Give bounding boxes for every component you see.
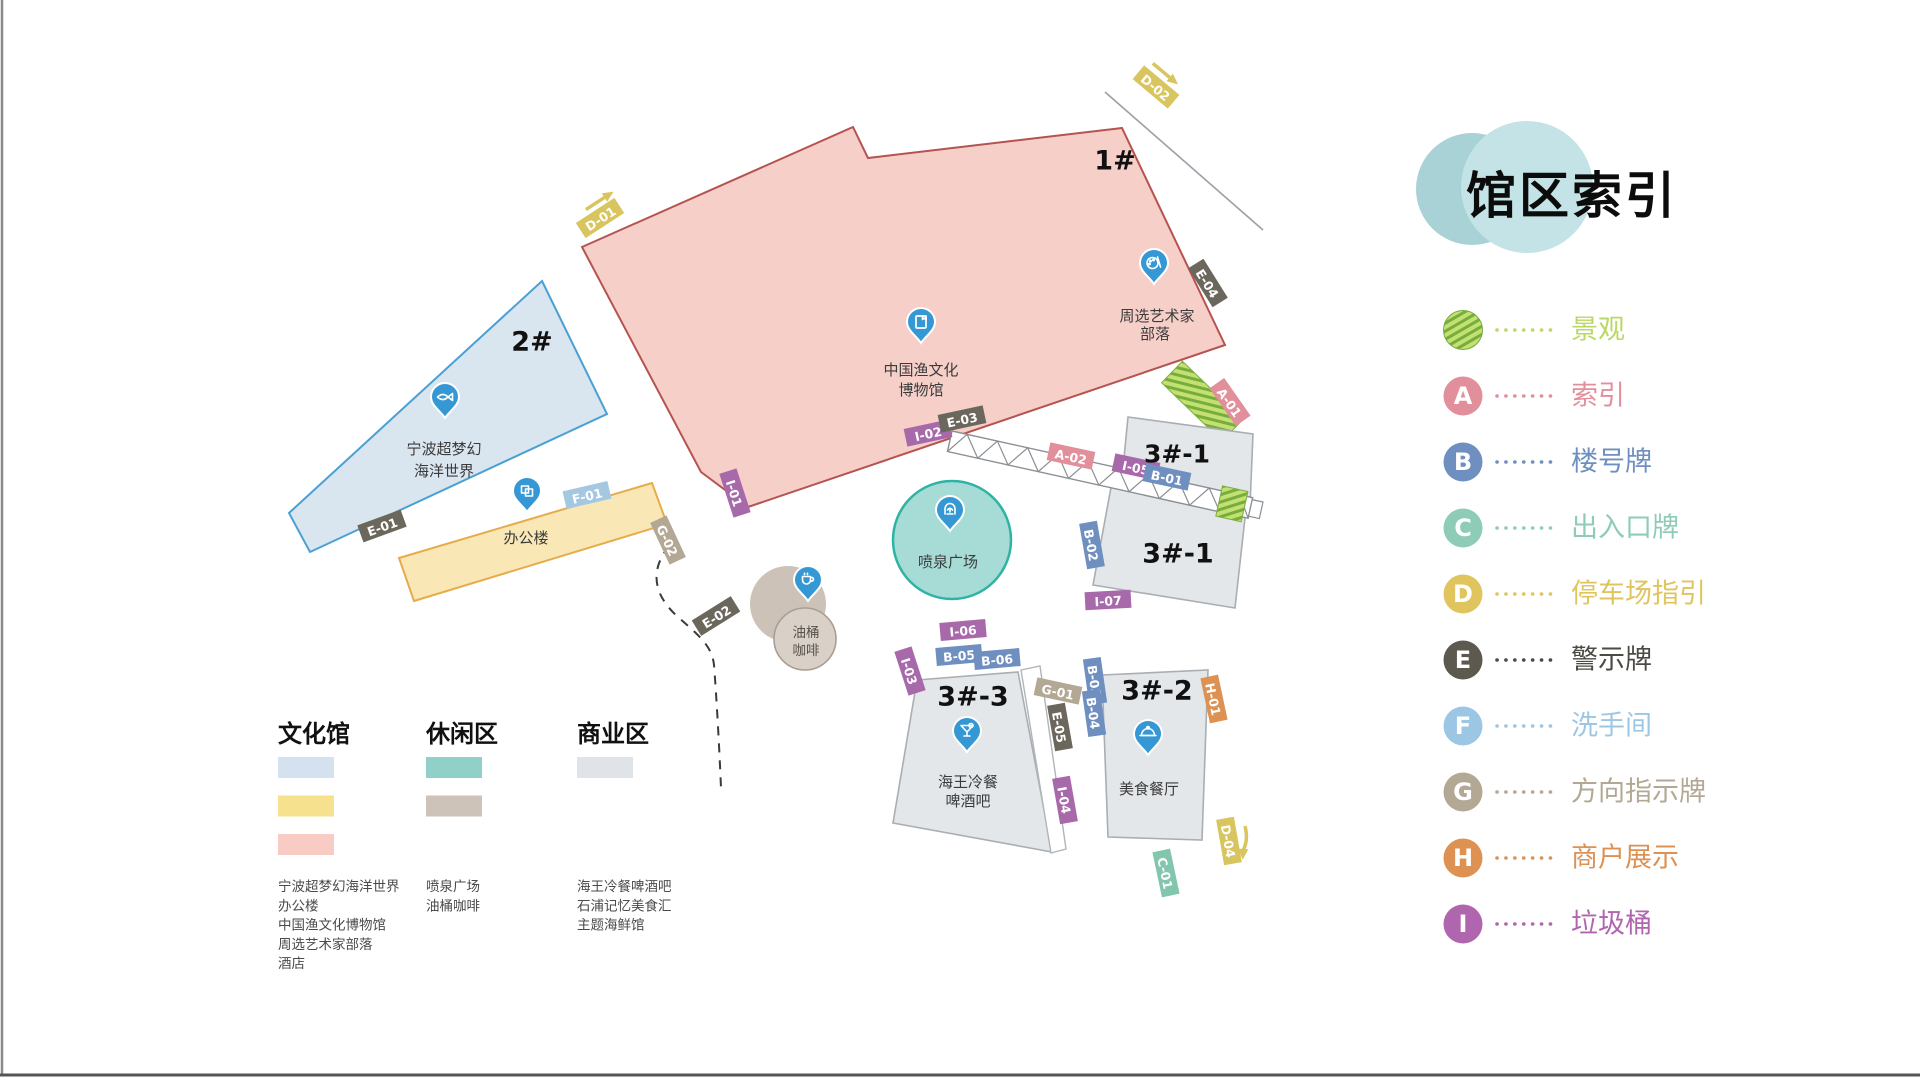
label-building-1: 1# <box>1094 146 1135 177</box>
ocean-label-line1: 宁波超梦幻 <box>406 440 481 458</box>
svg-text:酒店: 酒店 <box>278 956 305 972</box>
svg-text:景观: 景观 <box>1571 315 1625 346</box>
coffee-label-line2: 咖啡 <box>793 643 820 659</box>
svg-text:垃圾桶: 垃圾桶 <box>1571 909 1652 940</box>
label-building-3-1-lower: 3#-1 <box>1142 539 1213 570</box>
museum-label-line1: 中国渔文化 <box>883 361 958 379</box>
label-building-2: 2# <box>511 327 552 358</box>
bar-label-line2: 啤酒吧 <box>945 792 990 810</box>
svg-text:B: B <box>1454 448 1472 476</box>
svg-text:H: H <box>1453 844 1473 872</box>
svg-text:I: I <box>1459 910 1468 938</box>
svg-text:D: D <box>1453 580 1473 608</box>
svg-text:索引: 索引 <box>1571 381 1625 412</box>
label-building-3-1-upper: 3#-1 <box>1144 440 1210 469</box>
svg-text:宁波超梦幻海洋世界: 宁波超梦幻海洋世界 <box>278 878 400 895</box>
svg-text:I-07: I-07 <box>1094 593 1122 609</box>
svg-text:文化馆: 文化馆 <box>278 720 350 748</box>
svg-text:中国渔文化博物馆: 中国渔文化博物馆 <box>278 917 386 934</box>
museum-label-line2: 博物馆 <box>898 381 943 399</box>
svg-text:商户展示: 商户展示 <box>1571 843 1679 874</box>
svg-text:停车场指引: 停车场指引 <box>1571 579 1706 610</box>
svg-text:海王冷餐啤酒吧: 海王冷餐啤酒吧 <box>577 879 672 895</box>
coffee-label-line1: 油桶 <box>793 625 820 641</box>
svg-text:喷泉广场: 喷泉广场 <box>426 878 480 895</box>
restaurant-label: 美食餐厅 <box>1119 780 1179 798</box>
map-tag-I-07: I-07 <box>1085 590 1132 610</box>
svg-text:C: C <box>1454 514 1472 542</box>
label-building-3-3: 3#-3 <box>937 682 1008 713</box>
svg-text:油桶咖啡: 油桶咖啡 <box>426 898 480 914</box>
page-title: 馆区索引 <box>1466 167 1678 225</box>
svg-text:洗手间: 洗手间 <box>1571 711 1652 742</box>
svg-text:出入口牌: 出入口牌 <box>1571 513 1679 544</box>
bar-label-line1: 海王冷餐 <box>938 773 998 791</box>
svg-text:F: F <box>1455 712 1471 740</box>
artist-label-line1: 周选艺术家 <box>1119 307 1194 325</box>
ocean-label-line2: 海洋世界 <box>414 462 474 480</box>
svg-text:B-06: B-06 <box>980 651 1014 669</box>
svg-text:办公楼: 办公楼 <box>278 898 319 914</box>
svg-text:方向指示牌: 方向指示牌 <box>1571 777 1706 808</box>
venue-map-page: D-02D-01E-04A-01I-02E-03A-02I-05B-01B-02… <box>0 0 1920 1080</box>
svg-text:G: G <box>1453 778 1473 806</box>
svg-text:周选艺术家部落: 周选艺术家部落 <box>278 936 373 953</box>
svg-text:商业区: 商业区 <box>577 720 649 748</box>
svg-text:I-06: I-06 <box>949 622 978 639</box>
svg-text:B-05: B-05 <box>942 647 975 665</box>
svg-text:石浦记忆美食汇: 石浦记忆美食汇 <box>577 897 672 914</box>
artist-label-line2: 部落 <box>1140 325 1170 343</box>
svg-text:E: E <box>1455 646 1471 674</box>
svg-text:休闲区: 休闲区 <box>425 720 498 748</box>
svg-text:楼号牌: 楼号牌 <box>1571 447 1652 478</box>
label-building-3-2: 3#-2 <box>1121 676 1192 707</box>
office-label: 办公楼 <box>503 529 548 547</box>
svg-text:警示牌: 警示牌 <box>1571 645 1652 676</box>
fountain-label: 喷泉广场 <box>918 553 978 571</box>
svg-text:A: A <box>1454 382 1473 410</box>
svg-text:主题海鲜馆: 主题海鲜馆 <box>577 918 645 934</box>
